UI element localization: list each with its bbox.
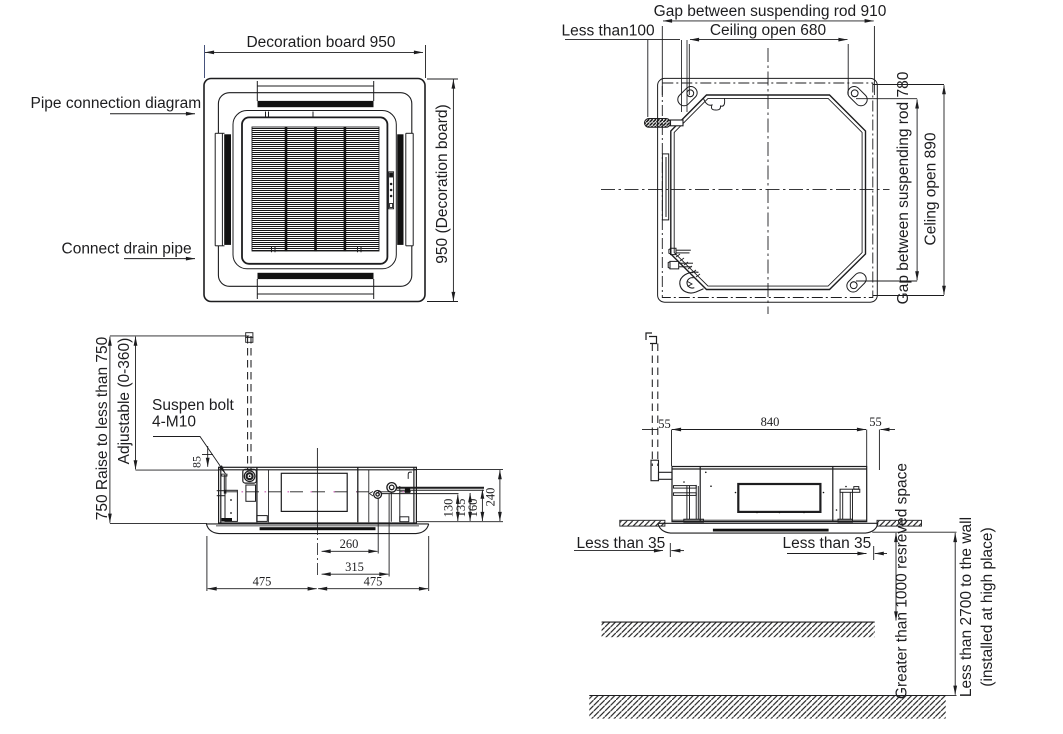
svg-text:55: 55 bbox=[658, 417, 671, 431]
svg-text:Ceiling open 680: Ceiling open 680 bbox=[710, 22, 827, 39]
svg-text:Adjustable (0-360): Adjustable (0-360) bbox=[116, 338, 133, 465]
svg-text:475: 475 bbox=[253, 575, 272, 589]
svg-text:55: 55 bbox=[869, 415, 882, 429]
svg-text:260: 260 bbox=[340, 537, 359, 551]
svg-text:Celing open 890: Celing open 890 bbox=[923, 132, 940, 245]
svg-text:Less than 35: Less than 35 bbox=[577, 535, 666, 552]
svg-text:Gap between suspending rod 780: Gap between suspending rod 780 bbox=[895, 71, 912, 304]
svg-text:475: 475 bbox=[364, 575, 383, 589]
svg-text:Less than100: Less than100 bbox=[562, 23, 655, 40]
svg-text:Less than 2700 to the wall: Less than 2700 to the wall bbox=[958, 517, 975, 697]
svg-text:Connect drain pipe: Connect drain pipe bbox=[62, 241, 192, 258]
svg-text:Less than 35: Less than 35 bbox=[783, 535, 872, 552]
svg-text:85: 85 bbox=[190, 456, 204, 468]
svg-text:840: 840 bbox=[761, 415, 780, 429]
svg-text:4-M10: 4-M10 bbox=[152, 414, 196, 431]
svg-text:950 (Decoration board): 950 (Decoration board) bbox=[434, 104, 451, 263]
svg-text:Greater than 1000 resreved spa: Greater than 1000 resreved space bbox=[894, 463, 911, 699]
svg-text:160: 160 bbox=[466, 499, 480, 518]
svg-text:Gap between suspending rod 910: Gap between suspending rod 910 bbox=[654, 3, 887, 20]
svg-text:(installed at high place): (installed at high place) bbox=[979, 527, 996, 686]
svg-text:315: 315 bbox=[345, 560, 364, 574]
svg-text:Decoration board 950: Decoration board 950 bbox=[246, 34, 395, 51]
svg-text:Pipe connection diagram: Pipe connection diagram bbox=[31, 95, 202, 112]
svg-text:Suspen bolt: Suspen bolt bbox=[152, 397, 235, 414]
svg-text:750 Raise to less than 750: 750 Raise to less than 750 bbox=[94, 336, 111, 520]
svg-text:240: 240 bbox=[484, 488, 498, 507]
